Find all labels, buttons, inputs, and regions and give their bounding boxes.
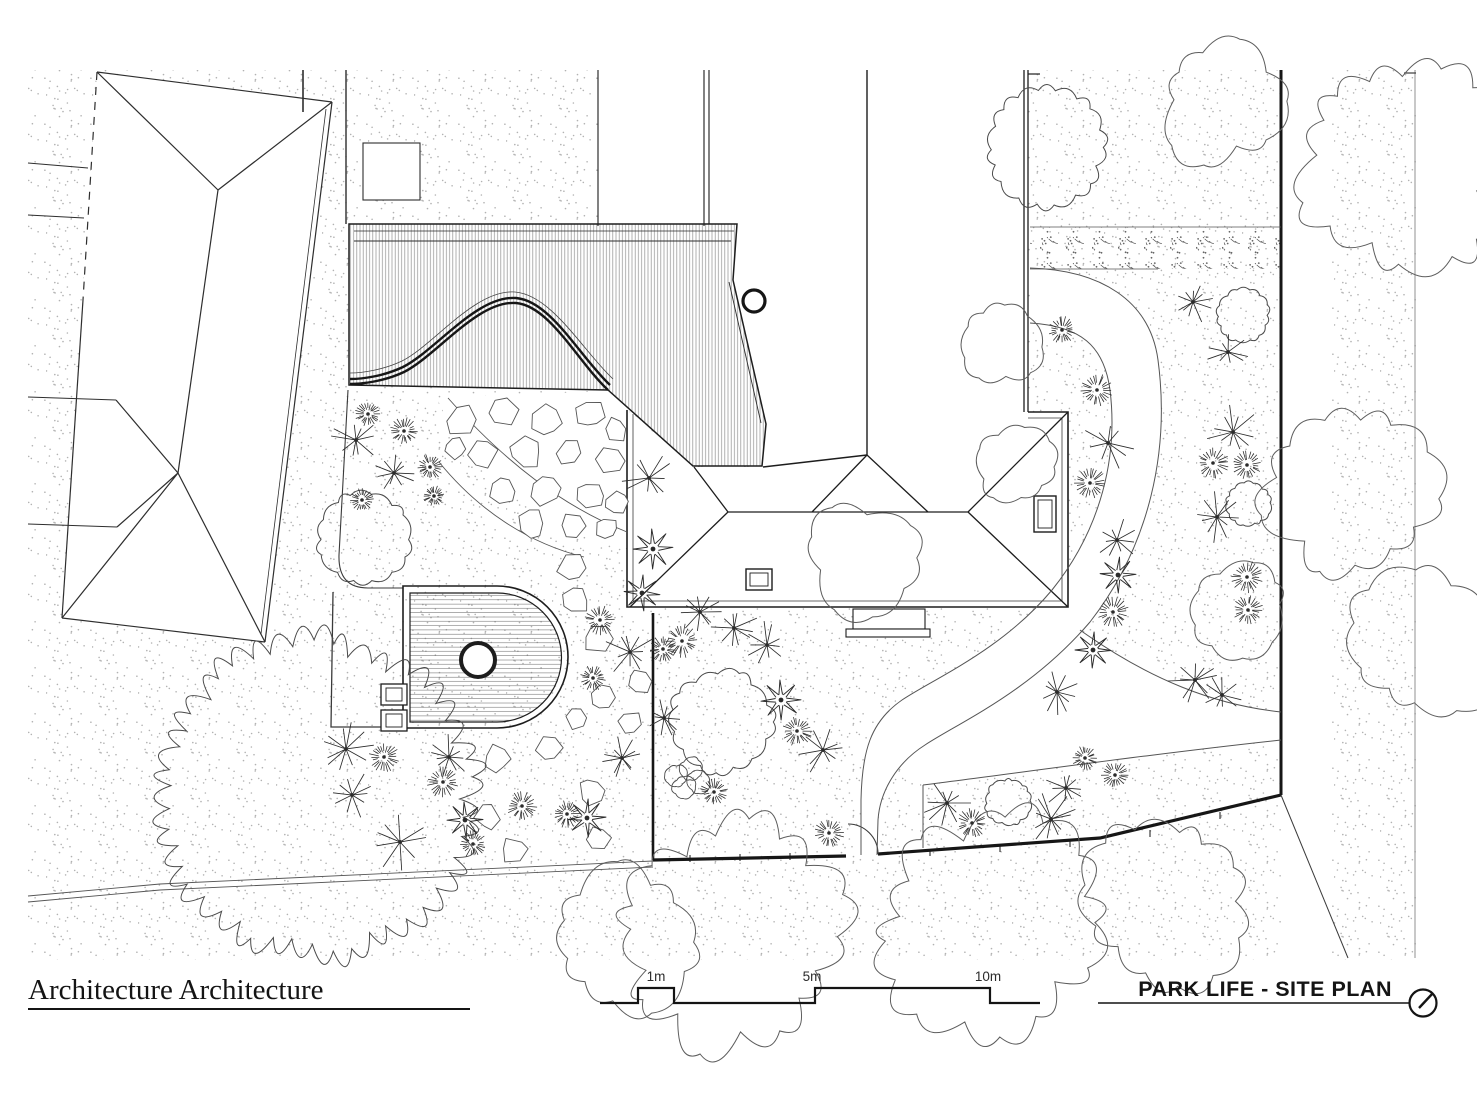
scale-bar (600, 988, 1040, 1003)
flagstone (597, 519, 617, 538)
title-block: Architecture Architecture 1m 5m 10m PARK… (28, 969, 1437, 1017)
scale-label-1m: 1m (647, 969, 666, 984)
scale-label-5m: 5m (803, 969, 822, 984)
deck-tree-well (461, 643, 495, 677)
side-path-strip (1283, 70, 1332, 960)
groundcover-band (1030, 227, 1281, 269)
firm-logo-text: Architecture Architecture (28, 974, 323, 1006)
scale-label-10m: 10m (975, 969, 1001, 984)
shed-footprint (363, 143, 420, 200)
downpipe-circle (743, 290, 765, 312)
garage-footprint (598, 70, 706, 224)
drawing-title: PARK LIFE - SITE PLAN (1138, 977, 1392, 1001)
north-arrow-icon (1410, 990, 1437, 1017)
site-plan-drawing: Architecture Architecture 1m 5m 10m PARK… (0, 0, 1477, 1100)
drawing-sheet: Architecture Architecture 1m 5m 10m PARK… (0, 0, 1477, 1100)
